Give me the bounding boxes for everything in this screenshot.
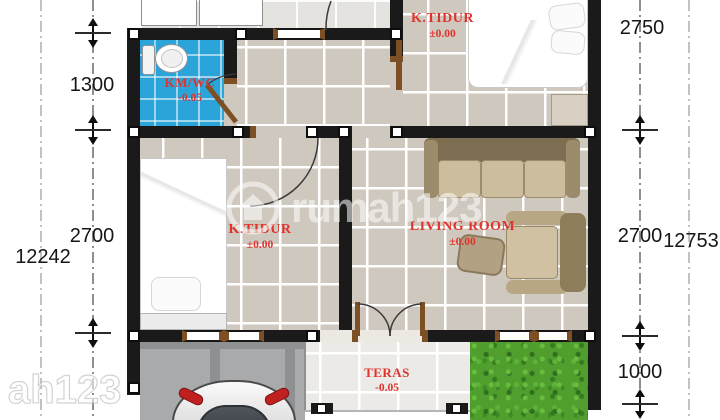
wall-column-marker [232, 126, 244, 138]
entrance-door-leaf [355, 302, 360, 336]
room-level: -0.05 [343, 382, 431, 395]
sofa-armrest [566, 140, 580, 198]
pillow [151, 277, 201, 311]
window [534, 330, 572, 342]
carport-terrace-divider [304, 342, 306, 410]
window [224, 330, 264, 342]
nightstand [551, 94, 588, 126]
wall-column-marker [306, 126, 318, 138]
wall-bedroom-top-bottom [390, 126, 601, 138]
dimension-tick [75, 319, 111, 347]
sofa-cushion [524, 160, 566, 198]
wall-column-marker [584, 126, 596, 138]
wall-column-marker [584, 330, 596, 342]
floorplan-canvas: 1300 2700 12242 2750 2700 1000 12753 [0, 0, 720, 420]
bed-headboard [140, 313, 227, 330]
toilet-icon [142, 45, 155, 75]
sofa-back [424, 138, 580, 162]
wall-column-marker [235, 28, 247, 40]
dimension-tick [622, 322, 658, 350]
door-jamb [250, 126, 256, 138]
wall-top-a [127, 28, 273, 40]
window [273, 28, 325, 40]
toilet-icon [161, 49, 183, 68]
grass-area [470, 342, 588, 420]
wall-right [588, 0, 601, 410]
watermark: rumah123 [224, 179, 481, 237]
cabinet [141, 0, 197, 26]
dimension-label-12242: 12242 [8, 246, 78, 269]
doorway-bedroom-left [256, 126, 312, 138]
dimension-label-1300: 1300 [57, 74, 127, 97]
room-name: KM/WC [150, 76, 230, 91]
entrance-door-leaf [420, 302, 425, 336]
window [182, 330, 224, 342]
dimension-line-left-inner [92, 0, 94, 420]
dimension-tick [75, 19, 111, 47]
carport-joint [140, 342, 305, 349]
dimension-line-right-inner [639, 0, 641, 420]
opening-living-terrace [320, 330, 352, 342]
dimension-label-2700-left: 2700 [57, 225, 127, 248]
wall-column-marker [338, 126, 350, 138]
armchair-back [560, 213, 586, 292]
dimension-tick [75, 116, 111, 144]
dimension-label-12753: 12753 [656, 230, 720, 253]
wall-bottom-c [428, 330, 495, 342]
cabinet [199, 0, 263, 26]
wall-column-marker [306, 330, 318, 342]
room-level: -0.05 [150, 92, 230, 105]
room-label-terrace: TERAS -0.05 [343, 366, 431, 395]
door-leaf-bedroom-top [396, 33, 402, 90]
dimension-label-2750: 2750 [607, 17, 677, 40]
armchair-armrest [506, 280, 568, 294]
dimension-tick [622, 390, 658, 418]
room-level: ±0.00 [395, 28, 490, 41]
room-label-bathroom: KM/WC -0.05 [150, 76, 230, 105]
room-name: TERAS [343, 366, 431, 381]
watermark-text: rumah123 [291, 184, 481, 232]
wall-column-marker [128, 28, 140, 40]
wall-column-marker [452, 404, 461, 413]
watermark-partial: ah123 [8, 368, 121, 413]
room-name: K.TIDUR [395, 11, 490, 27]
opening-hall-living [352, 126, 390, 138]
dimension-line-left-outer [40, 0, 42, 420]
blanket-fold [141, 160, 226, 230]
sofa-cushion [481, 160, 524, 198]
entrance-threshold [358, 330, 422, 342]
dimension-line-right-outer [688, 0, 690, 420]
pillow [550, 30, 586, 56]
dimension-tick [622, 116, 658, 144]
window [495, 330, 534, 342]
wall-column-marker [391, 126, 403, 138]
wall-column-marker [128, 126, 140, 138]
wall-column-marker [317, 404, 326, 413]
wall-column-marker [128, 382, 140, 394]
wall-column-marker [128, 330, 140, 342]
room-level: ±0.00 [215, 239, 305, 252]
room-label-bedroom-top: K.TIDUR ±0.00 [395, 11, 490, 41]
room-level: ±0.00 [400, 236, 525, 249]
dimension-label-1000: 1000 [605, 361, 675, 384]
pillow [547, 2, 586, 32]
house-icon [224, 179, 282, 237]
hall-floor [237, 40, 390, 126]
